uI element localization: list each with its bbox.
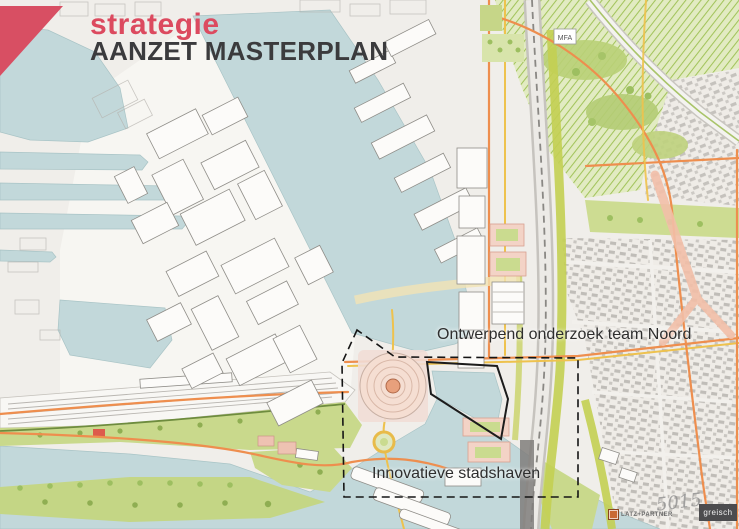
mfa-label-text: MFA [558,35,573,42]
masterplan-slide: MFA strategie AANZET MASTERPLAN Ontwerpe… [0,0,739,529]
mfa-building: MFA [554,29,576,44]
masterplan-map: MFA [0,0,739,529]
circular-landmark [358,350,428,422]
roundabout [374,432,394,452]
canal-bridge [520,440,534,529]
